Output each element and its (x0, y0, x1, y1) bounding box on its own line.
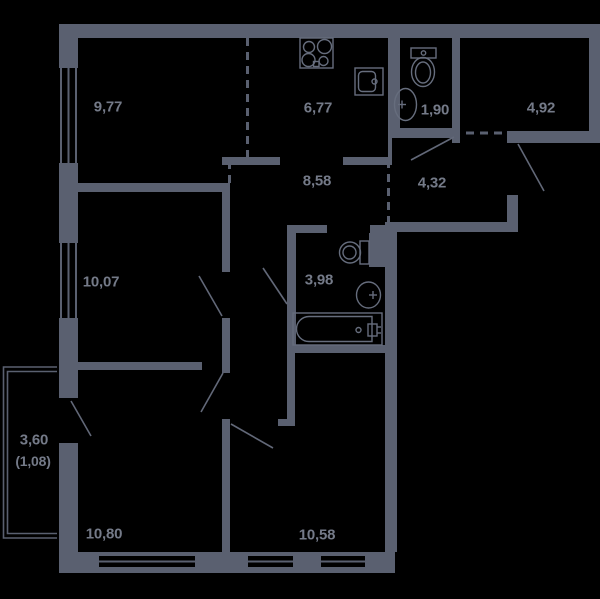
door-swing-entrance (518, 144, 544, 191)
door-swing-balcony (71, 401, 91, 436)
door-swing-bedroom-2 (201, 373, 223, 412)
wash-basin-icon-bathroom (357, 282, 381, 308)
label-bathroom: 3,98 (305, 272, 333, 289)
kitchen-sink-icon (355, 68, 383, 95)
label-entry-hall: 4,32 (418, 175, 446, 192)
label-room-4-92: 4,92 (527, 100, 555, 117)
window-bedroom-1 (61, 243, 76, 318)
label-balcony: 3,60 (20, 432, 48, 449)
label-corridor: 8,58 (303, 173, 331, 190)
door-swing-bedroom-1 (199, 276, 222, 316)
window-living-room (61, 68, 76, 163)
stove-icon (300, 38, 333, 68)
wash-basin-icon-wc (395, 89, 417, 121)
toilet-icon-bathroom (340, 241, 370, 264)
label-bedroom-3: 10,58 (299, 527, 336, 544)
door-swing-wc (411, 137, 454, 160)
floor-plan: 9,77 6,77 1,90 4,92 8,58 4,32 10,07 3,98… (0, 0, 600, 599)
label-bedroom-2: 10,80 (86, 526, 123, 543)
label-bedroom-1: 10,07 (83, 274, 120, 291)
dashed-boundary (230, 38, 508, 222)
window-bedroom-3a (248, 554, 293, 569)
door-swing-corridor (263, 268, 287, 304)
bathtub-icon (293, 313, 382, 345)
toilet-icon-wc (411, 48, 436, 87)
label-living-room: 9,77 (94, 99, 122, 116)
label-kitchen: 6,77 (304, 100, 332, 117)
door-swing-bedroom-3 (231, 424, 273, 448)
label-wc: 1,90 (421, 102, 449, 119)
window-bedroom-2 (99, 554, 195, 569)
window-bedroom-3b (321, 554, 365, 569)
label-balcony-reduced: (1,08) (15, 453, 50, 469)
